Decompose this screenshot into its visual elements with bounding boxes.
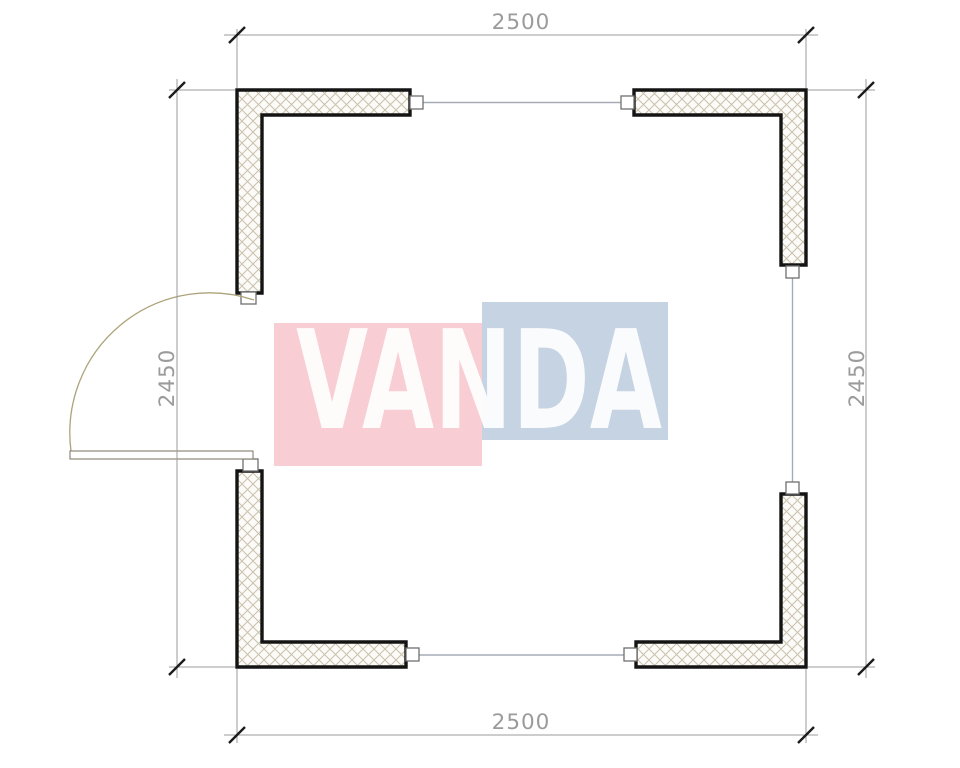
- wall-bottom-right: [636, 494, 806, 667]
- window-marker: [406, 648, 419, 661]
- window-marker: [410, 96, 423, 109]
- dimension-bottom: 2500: [224, 669, 818, 743]
- window-marker: [624, 648, 637, 661]
- dimension-top: 2500: [224, 10, 818, 88]
- window-marker: [621, 96, 634, 109]
- floor-plan-page: VANDA: [0, 0, 960, 768]
- door-leaf: [70, 451, 253, 459]
- window-marker: [786, 482, 799, 494]
- dimension-left: 2450: [155, 79, 235, 678]
- dimension-right: 2450: [808, 79, 875, 678]
- window-marker: [786, 266, 799, 278]
- dimension-label-left: 2450: [155, 349, 180, 408]
- watermark-text: VANDA: [296, 302, 662, 461]
- dimension-label-bottom: 2500: [492, 710, 551, 735]
- wall-top-left: [237, 90, 410, 293]
- wall-bottom-left: [237, 471, 406, 667]
- floor-plan-canvas: VANDA: [0, 0, 960, 768]
- dimension-label-top: 2500: [492, 10, 551, 35]
- door-frame-marker-bottom: [243, 459, 258, 471]
- wall-top-right: [634, 90, 806, 265]
- watermark: VANDA: [274, 302, 668, 466]
- dimension-label-right: 2450: [845, 349, 870, 408]
